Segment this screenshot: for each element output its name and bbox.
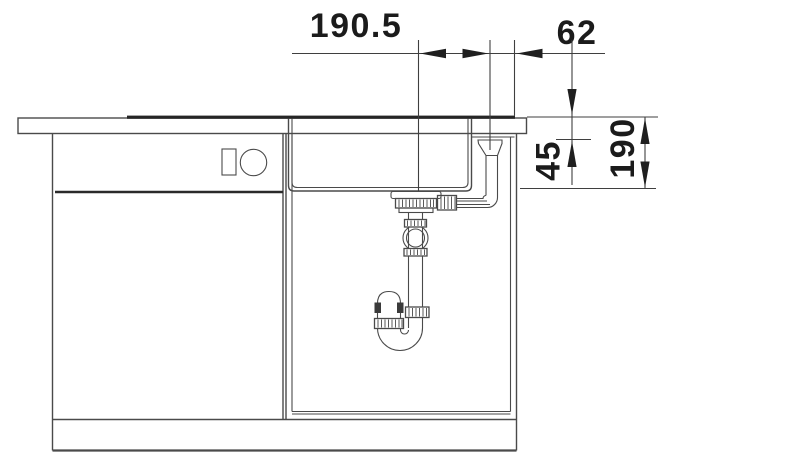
dim-label-62: 62 <box>557 14 598 52</box>
sink-bowl <box>289 119 515 192</box>
drain-flange <box>391 192 441 199</box>
dim-label-45: 45 <box>530 140 568 181</box>
sink-rim <box>127 116 515 119</box>
dim-label-190: 190 <box>604 117 642 178</box>
drawing-canvas: 190.5 62 45 190 <box>0 0 800 465</box>
dimension-vertical-45-group: 45 <box>530 40 592 185</box>
bowl-inner-wall <box>292 119 468 188</box>
arrowhead-right-icon <box>463 49 489 58</box>
bowl-outer-wall <box>289 119 472 192</box>
trap-ring-inner <box>407 229 425 247</box>
dim-label-190-5: 190.5 <box>310 7 403 45</box>
elbow-inner <box>457 196 486 199</box>
worktop-slab <box>18 118 527 134</box>
left-cabinet <box>53 134 284 451</box>
worktop <box>18 116 527 134</box>
u-bend-outer <box>378 328 423 351</box>
arrowhead-edge-icon <box>517 49 543 58</box>
riser-tab-left <box>375 303 382 314</box>
sink-installation-drawing: 190.5 62 45 190 <box>0 0 800 465</box>
arrowhead-up-icon <box>567 141 576 167</box>
arrowhead-down-icon <box>567 89 576 115</box>
drawer-handle-icon <box>222 149 236 175</box>
riser-cap-dome <box>378 292 401 304</box>
riser-tab-right <box>397 303 404 314</box>
plinth <box>53 420 517 451</box>
drain-assembly <box>375 192 442 351</box>
sink-cabinet <box>286 134 517 451</box>
knob-icon <box>240 149 266 175</box>
overflow-assembly <box>438 140 503 210</box>
arrowhead-left-icon <box>420 49 446 58</box>
u-bend-inner <box>401 330 409 334</box>
drain-body-band <box>399 208 433 213</box>
